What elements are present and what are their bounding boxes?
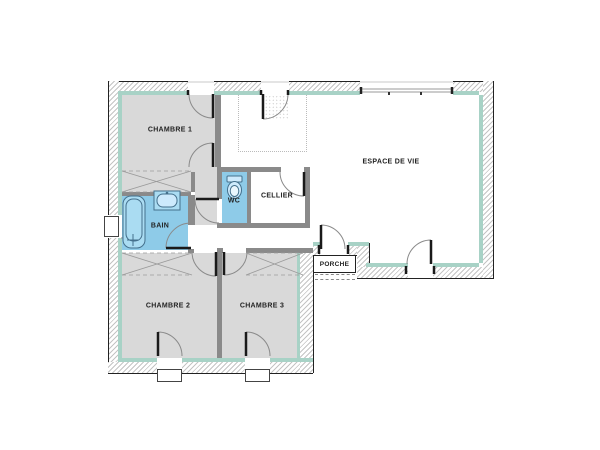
bathtub-icon: [123, 196, 145, 248]
wardrobes: [122, 171, 303, 275]
wardrobe-chambre3: [246, 253, 303, 275]
label-chambre2: CHAMBRE 2: [146, 303, 190, 310]
fixtures: [123, 176, 242, 248]
door-leaves: [158, 94, 431, 356]
label-bain: BAIN: [151, 223, 169, 230]
washbasin-icon: [154, 191, 180, 210]
label-espace-de-vie: ESPACE DE VIE: [362, 159, 419, 166]
floor-plan: PORCHE: [0, 0, 600, 450]
door-jambs: [188, 90, 434, 274]
label-cellier: CELLIER: [261, 193, 293, 200]
label-wc: WC: [228, 198, 240, 205]
wardrobe-chambre1: [122, 171, 191, 192]
wardrobe-chambre2: [122, 253, 192, 275]
label-chambre3: CHAMBRE 3: [240, 303, 284, 310]
plan-symbols: [0, 0, 600, 450]
bay-window-glazing: [361, 87, 452, 95]
toilet-icon: [227, 176, 242, 199]
label-chambre1: CHAMBRE 1: [148, 127, 192, 134]
